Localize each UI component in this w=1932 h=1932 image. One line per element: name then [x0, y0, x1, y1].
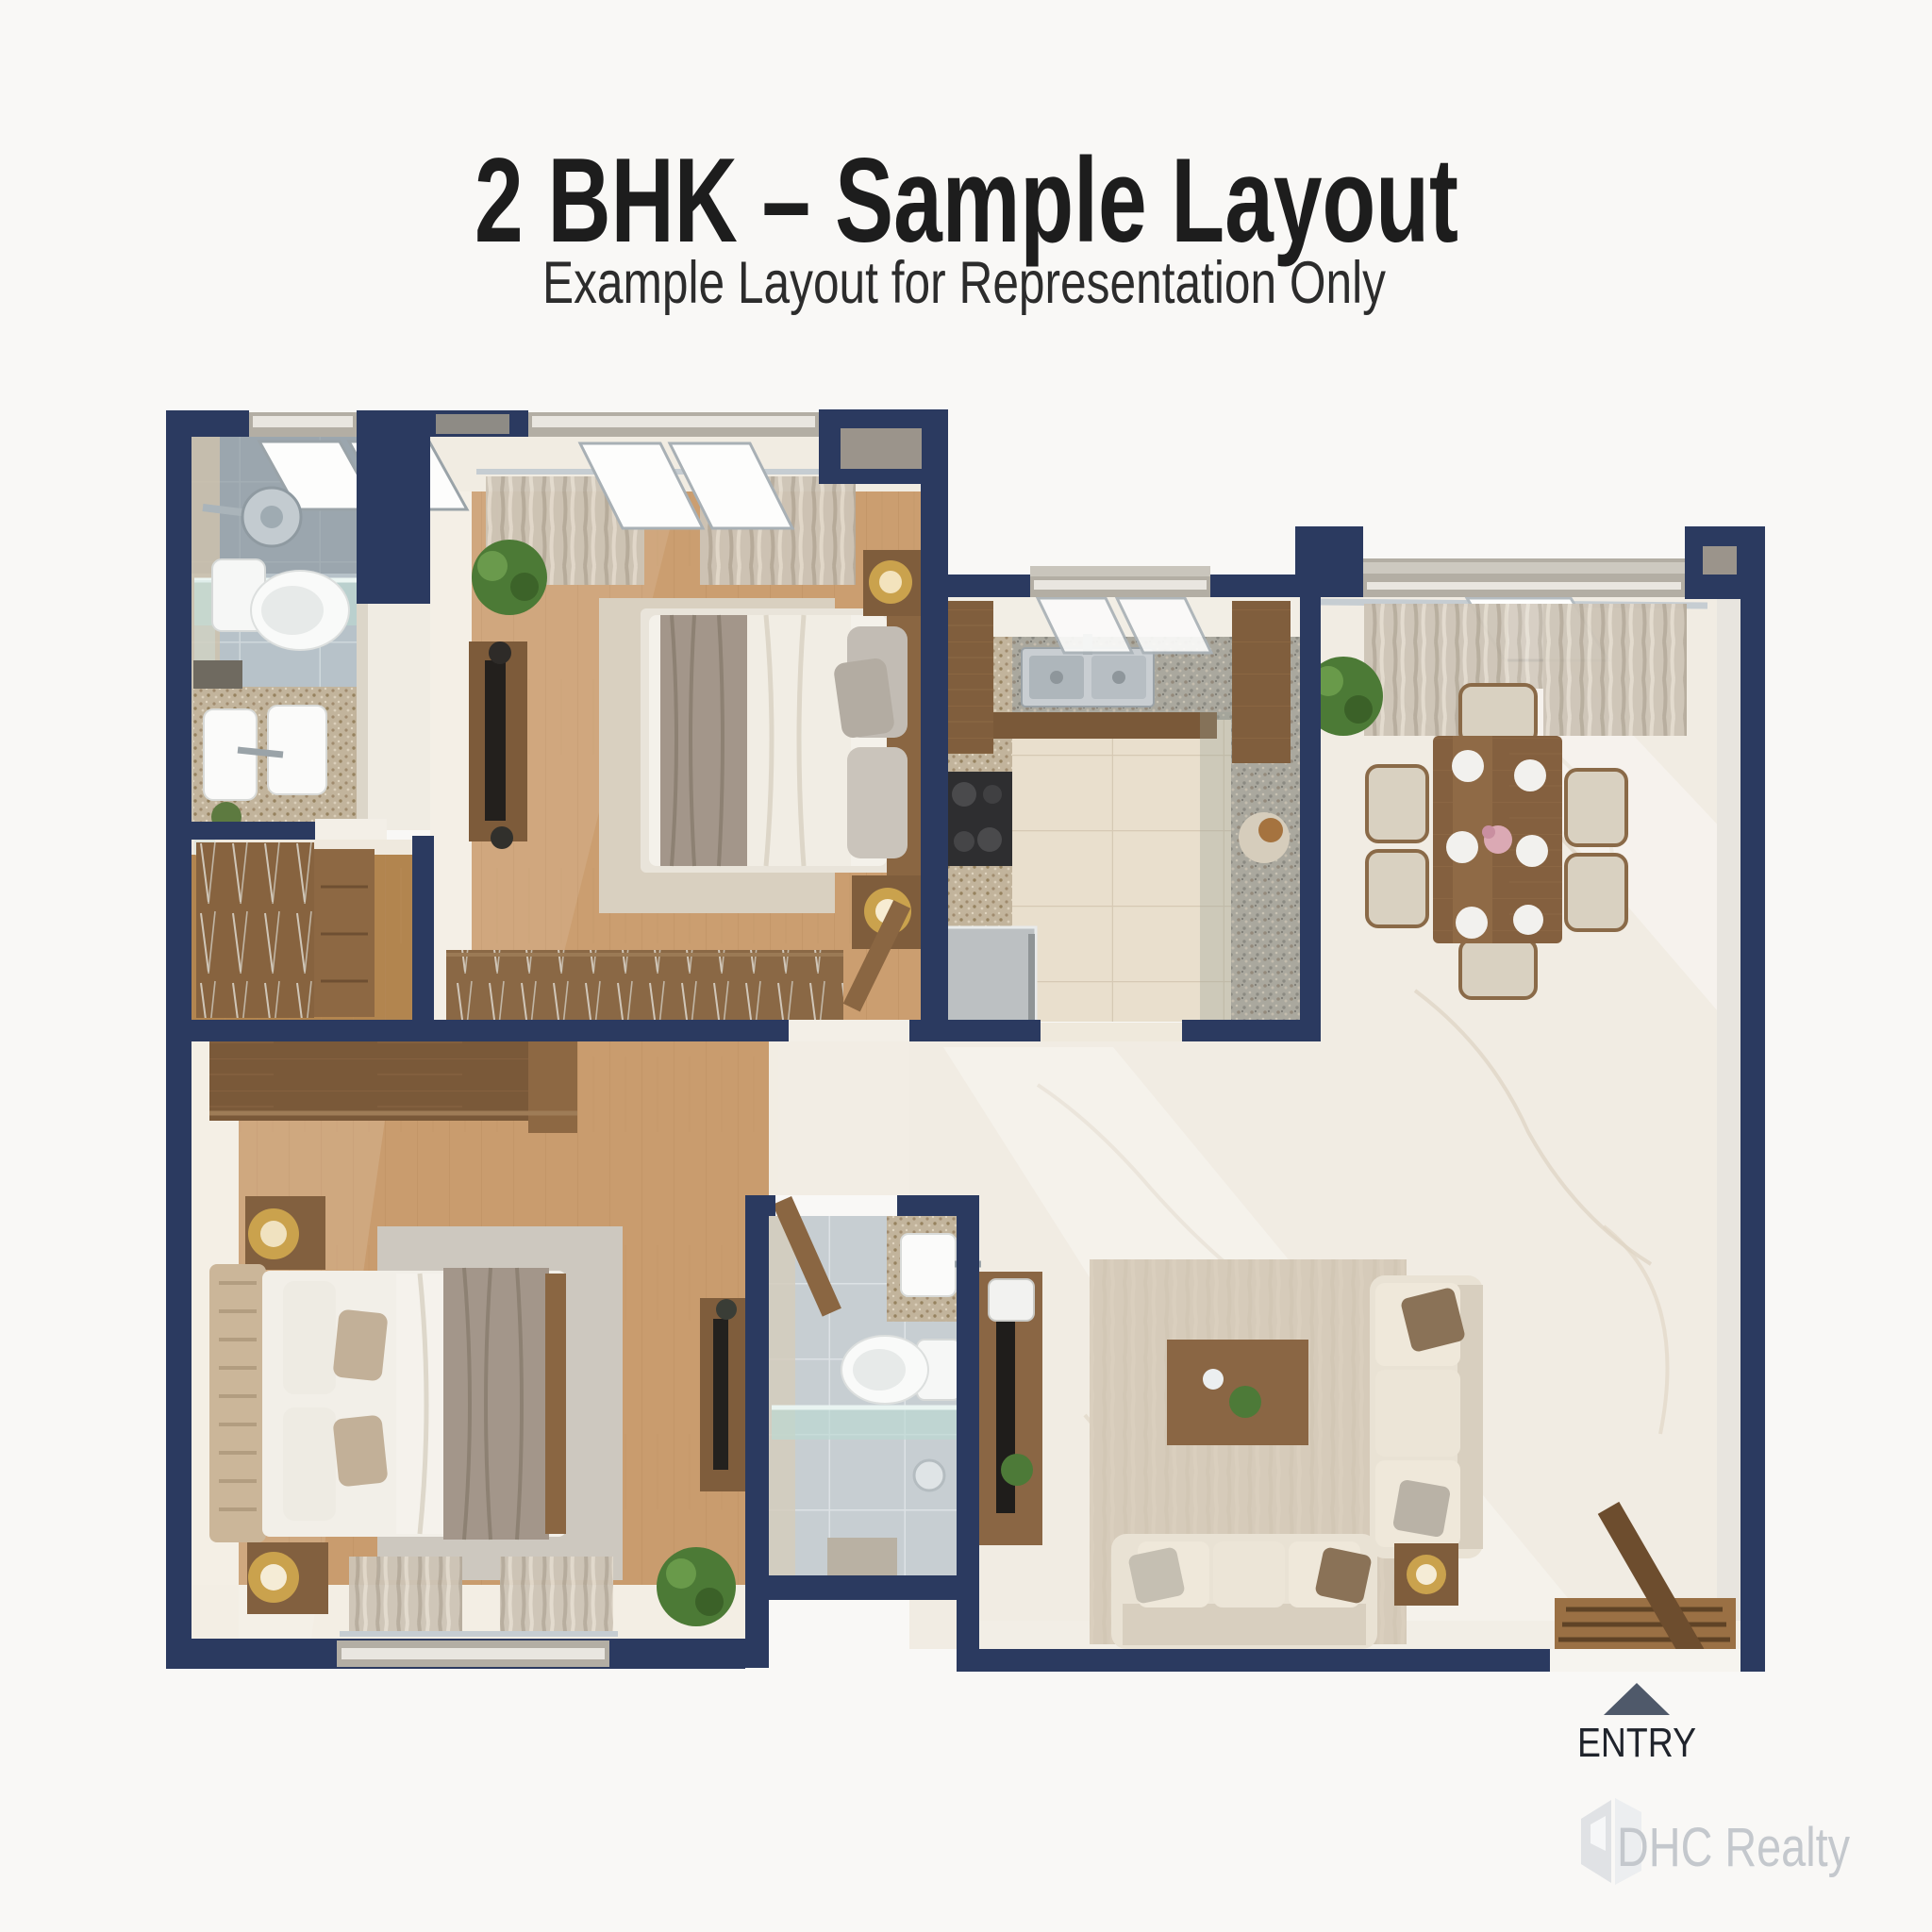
svg-text:ENTRY: ENTRY [1577, 1720, 1696, 1766]
svg-text:Example Layout for Representat: Example Layout for Representation Only [542, 250, 1386, 316]
svg-text:DHC Realty: DHC Realty [1617, 1817, 1850, 1878]
svg-text:2 BHK – Sample Layout: 2 BHK – Sample Layout [475, 133, 1458, 267]
